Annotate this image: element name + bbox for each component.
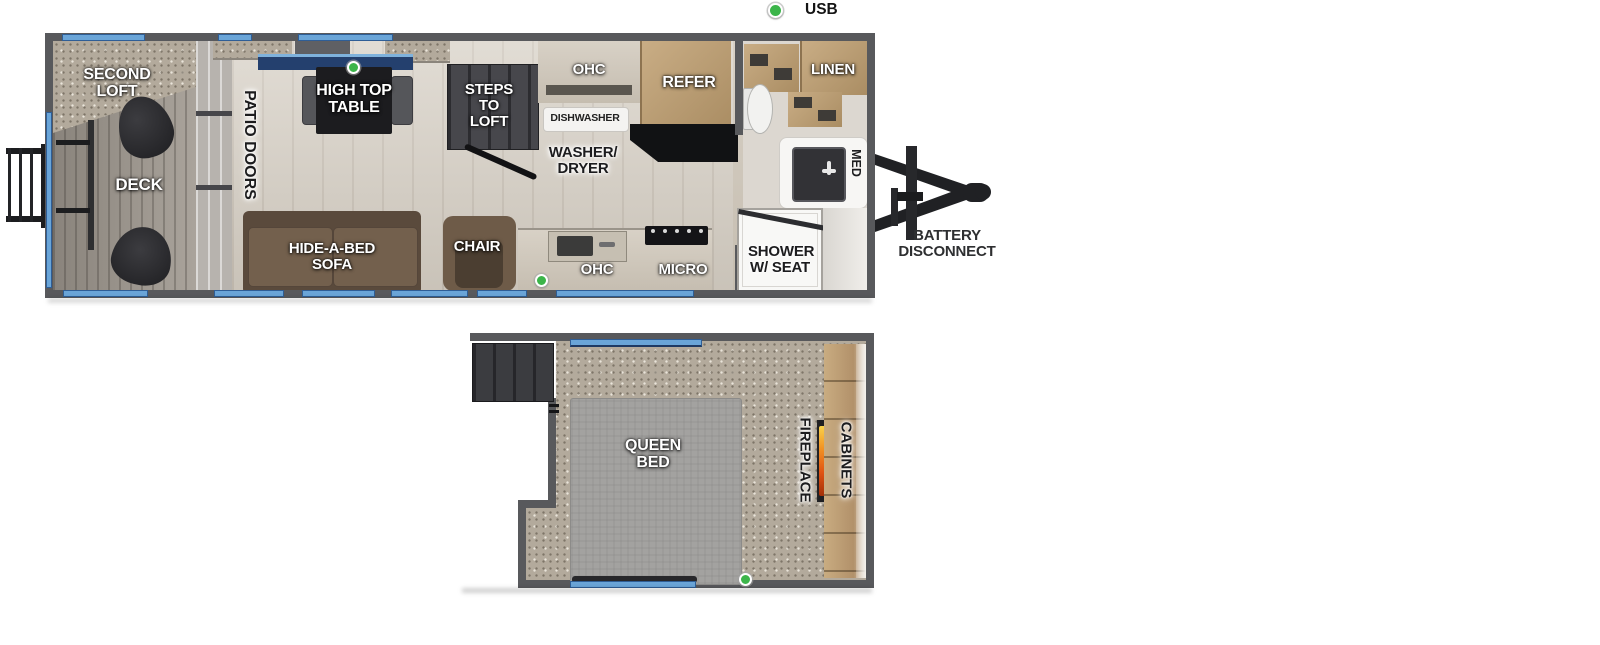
window [570,581,696,588]
kitchen-sink [548,231,627,262]
window [556,290,694,297]
fireplace-label: FIREPLACE [797,417,814,502]
drawer-front [818,110,836,121]
cooktop-knob [687,229,691,233]
window [302,290,375,297]
patio-door-frame [196,111,232,116]
plan-shadow [462,588,872,593]
deck-railing-bar [56,208,90,213]
window [218,34,252,41]
ohc-top-label: OHC [564,62,614,78]
railing-bar [6,148,46,154]
window [63,290,148,297]
main-floorplan: SECOND LOFT DECK PATIO DOORS HIGH TOP TA… [45,33,875,298]
usb-indicator-icon [768,3,783,18]
exterior-deck-railing [6,138,46,238]
faucet-icon [827,161,831,175]
cooktop-knob [699,229,703,233]
chair-label: CHAIR [449,239,505,255]
bathroom-wall [735,41,743,135]
wall-left-lower [518,500,526,588]
usb-legend: USB [763,0,863,22]
stove-burner-icon [710,133,725,140]
queen-bed [570,398,742,585]
window [477,290,527,297]
railing-post [30,148,33,222]
high-top-table-label: HIGH TOP TABLE [312,83,396,117]
usb-legend-label: USB [805,1,838,19]
deck-label: DECK [111,176,167,194]
sink-faucet [599,242,615,247]
refer-label: REFER [659,75,719,92]
deck-railing-bar [56,140,90,145]
vanity-grate [750,54,768,66]
window [570,339,702,347]
dishwasher-label: DISHWASHER [543,113,627,124]
entry-door-window [46,112,52,288]
usb-indicator-icon [347,61,360,74]
drawer-front [794,97,812,108]
lav-sink [792,147,846,202]
cabinet-gloss [856,344,866,578]
queen-bed-label: QUEEN BED [621,438,685,472]
wall-left-upper [548,398,556,508]
stair-hardware [549,410,559,413]
battery-disconnect-label: BATTERY DISCONNECT [887,228,1007,260]
usb-indicator-icon [739,573,752,586]
floorplan-diagram: USB [0,0,1600,645]
vanity-grate [774,68,792,80]
cooktop-knob [651,229,655,233]
window [298,34,393,41]
second-loft-label: SECOND LOFT [81,67,153,101]
bath-vanity-cabinet [744,44,799,92]
stair-hardware [549,404,559,407]
cabinet-slot [546,85,632,95]
cooktop [645,226,708,245]
wall-top [45,33,875,41]
stove-burner-icon [690,145,705,152]
stove-burner-icon [690,133,705,140]
bath-drawer-cabinet [788,92,842,127]
railing-post [19,148,22,222]
med-label: MED [849,149,863,177]
steps-to-loft-label: STEPS TO LOFT [462,82,516,130]
toilet-bowl [747,84,773,134]
shower-label: SHOWER W/ SEAT [748,244,812,276]
patio-doors-panel [196,41,232,290]
patio-doors-label: PATIO DOORS [240,90,258,200]
wall-right [866,333,874,588]
loft-stairs [472,343,554,402]
stove-burner-icon [710,145,725,152]
cooktop-knob [663,229,667,233]
railing-post [8,148,11,222]
tub-surround [823,208,867,292]
linen-label: LINEN [805,62,861,78]
micro-label: MICRO [653,262,713,278]
loft-floorplan: QUEEN BED FIREPLACE CABINETS [455,325,880,593]
patio-door-frame [196,185,232,190]
plan-shadow [48,298,872,303]
railing-bar [6,216,46,222]
sink-basin [557,236,593,256]
window [214,290,284,297]
ohc-bottom-label: OHC [572,262,622,278]
window [391,290,468,297]
sofa-label: HIDE-A-BED SOFA [279,241,385,273]
media-cabinet [295,41,350,55]
usb-indicator-icon [535,274,548,287]
washer-dryer-label: WASHER/ DRYER [547,145,619,177]
cooktop-knob [675,229,679,233]
wall-right [867,33,875,298]
cabinets-label: CABINETS [838,422,855,499]
window [62,34,145,41]
